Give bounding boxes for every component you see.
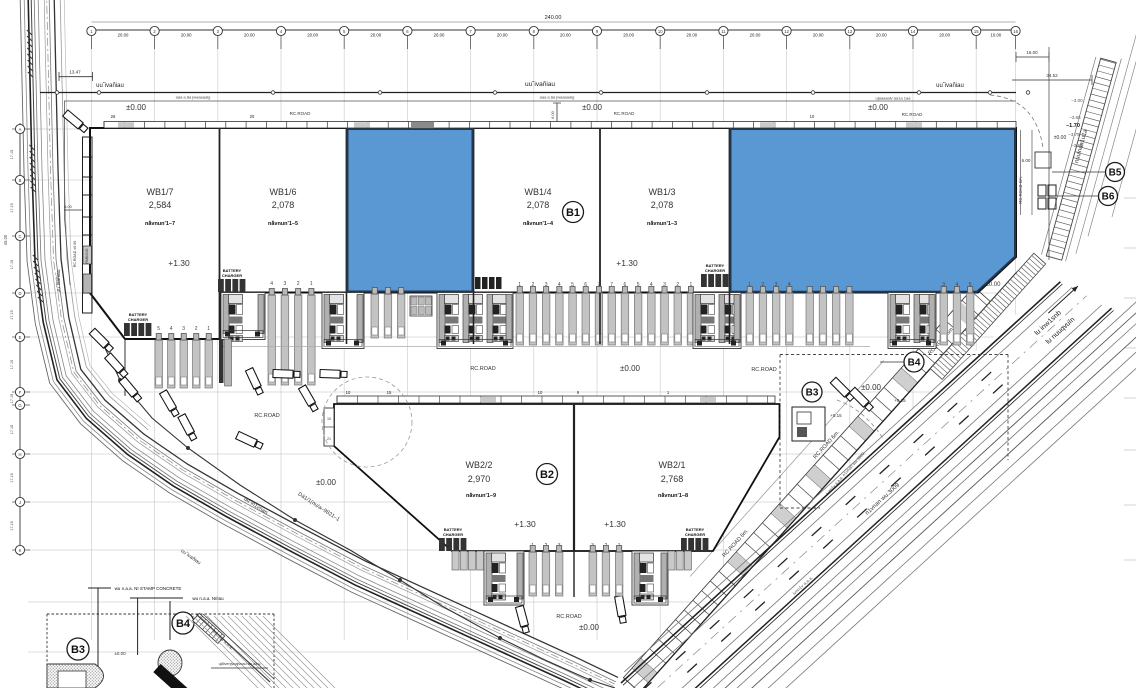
svg-text:WB1/4: WB1/4 (524, 187, 551, 197)
svg-text:uu˘ivañiau: uu˘ivañiau (936, 82, 964, 89)
svg-text:CHARGER: CHARGER (443, 532, 463, 537)
svg-text:RC.ROAD: RC.ROAD (290, 111, 312, 116)
svg-text:20: 20 (250, 114, 255, 119)
svg-text:2: 2 (195, 326, 198, 332)
svg-text:3: 3 (182, 326, 185, 332)
svg-text:17.15: 17.15 (10, 203, 14, 213)
svg-text:10: 10 (327, 417, 331, 421)
svg-text:13: 13 (847, 29, 852, 34)
svg-text:wu n.a.a. Nī STAMP CONCRETE: wu n.a.a. Nī STAMP CONCRETE (115, 586, 182, 591)
svg-text:240.00: 240.00 (545, 15, 562, 21)
svg-text:PARKING: PARKING (85, 248, 89, 263)
svg-text:nå̃vnun'1–3: nå̃vnun'1–3 (647, 220, 677, 227)
svg-text:B3: B3 (71, 644, 85, 656)
svg-text:±0.00: ±0.00 (986, 282, 1002, 288)
svg-text:B4: B4 (908, 358, 921, 369)
svg-text:RC.ROAD: RC.ROAD (614, 111, 636, 116)
svg-text:+0.15: +0.15 (830, 413, 842, 418)
svg-text:RC.ROAD: RC.ROAD (751, 367, 776, 373)
svg-text:17.15: 17.15 (10, 521, 14, 531)
svg-text:16: 16 (1013, 29, 1018, 34)
svg-text:–3.00: –3.00 (1071, 98, 1083, 103)
svg-text:WB2/1: WB2/1 (658, 460, 685, 470)
svg-text:12: 12 (784, 29, 789, 34)
svg-text:2: 2 (297, 281, 300, 287)
svg-text:uu˘ivañiau: uu˘ivañiau (525, 80, 555, 88)
svg-text:aaa a.āa jwaaaaalg: aaa a.āa jwaaaaalg (176, 95, 211, 100)
svg-text:45.00: 45.00 (3, 234, 8, 245)
svg-text:2,584: 2,584 (149, 200, 172, 210)
svg-text:CHARGER: CHARGER (705, 268, 725, 273)
svg-text:10: 10 (658, 29, 663, 34)
svg-text:D: D (18, 291, 21, 296)
svg-text:F: F (19, 390, 22, 395)
svg-text:2,078: 2,078 (651, 200, 674, 210)
svg-text:15: 15 (387, 390, 392, 395)
svg-text:6.00: 6.00 (1022, 158, 1031, 163)
svg-text:20.00: 20.00 (813, 33, 824, 38)
svg-text:E: E (19, 335, 22, 340)
svg-text:20.00: 20.00 (497, 33, 508, 38)
svg-text:2,768: 2,768 (661, 474, 684, 484)
svg-text:4: 4 (270, 281, 273, 287)
svg-text:ujaaaaalv aa1a 1aa: ujaaaaalv aa1a 1aa (876, 96, 912, 101)
svg-text:±0.00: ±0.00 (582, 103, 603, 112)
svg-text:RC.ROAD: RC.ROAD (470, 366, 495, 372)
svg-text:11: 11 (721, 29, 726, 34)
svg-text:26: 26 (111, 114, 116, 119)
svg-text:16.00: 16.00 (1026, 50, 1038, 55)
svg-text:RC.ROAD ±0.00: RC.ROAD ±0.00 (73, 241, 77, 268)
svg-text:J: J (19, 500, 21, 505)
svg-text:WB2/2: WB2/2 (465, 460, 492, 470)
svg-text:A: A (19, 127, 22, 132)
svg-text:aaa a.āa jwaaaaalg: aaa a.āa jwaaaaalg (540, 95, 575, 100)
svg-text:±0.00: ±0.00 (1054, 135, 1067, 141)
svg-text:WB1/3: WB1/3 (648, 187, 675, 197)
svg-text:1: 1 (207, 326, 210, 332)
svg-text:uj8lvenjvnajvnau aa.aa u.: uj8lvenjvnajvnau aa.aa u. (219, 662, 262, 666)
svg-text:B3: B3 (806, 388, 819, 399)
svg-text:6.00: 6.00 (551, 111, 555, 118)
svg-text:±0.00: ±0.00 (114, 651, 126, 656)
svg-text:10: 10 (538, 390, 543, 395)
svg-text:B4: B4 (176, 618, 191, 630)
svg-text:20.00: 20.00 (244, 33, 255, 38)
svg-text:CHARGER: CHARGER (685, 532, 705, 537)
svg-text:2,970: 2,970 (468, 474, 491, 484)
svg-text:2,078: 2,078 (527, 200, 550, 210)
svg-text:17.15: 17.15 (10, 360, 14, 370)
svg-text:B2: B2 (540, 469, 554, 481)
svg-text:15: 15 (974, 29, 979, 34)
svg-text:10: 10 (810, 114, 815, 119)
svg-text:nå̃vnun'1–9: nå̃vnun'1–9 (466, 492, 496, 499)
svg-text:4: 4 (170, 326, 173, 332)
svg-text:20.00: 20.00 (939, 33, 950, 38)
svg-text:17.15: 17.15 (10, 473, 14, 483)
svg-text:+1.30: +1.30 (168, 258, 190, 268)
svg-text:+1.30: +1.30 (616, 258, 638, 268)
svg-text:+0.15: +0.15 (894, 398, 906, 403)
svg-text:–3.65: –3.65 (1069, 115, 1081, 120)
svg-text:±0.00: ±0.00 (579, 623, 600, 632)
svg-text:–1.70: –1.70 (1066, 123, 1080, 129)
svg-text:17.15: 17.15 (10, 150, 14, 160)
svg-text:17.15: 17.15 (10, 260, 14, 270)
svg-text:–3.75: –3.75 (1068, 132, 1080, 137)
svg-text:17.15: 17.15 (10, 425, 14, 435)
svg-text:nå̃vnun'1–4: nå̃vnun'1–4 (523, 220, 554, 227)
svg-text:B6: B6 (1102, 192, 1115, 203)
svg-text:B5: B5 (1109, 168, 1122, 179)
svg-text:20.00: 20.00 (434, 33, 445, 38)
svg-text:±0.00: ±0.00 (126, 103, 147, 112)
svg-text:6.00: 6.00 (64, 205, 71, 209)
svg-text:+1.30: +1.30 (514, 519, 536, 529)
svg-text:34.52: 34.52 (1046, 73, 1058, 78)
svg-text:2,078: 2,078 (272, 200, 295, 210)
svg-text:20.00: 20.00 (876, 33, 887, 38)
svg-text:+1.30: +1.30 (604, 519, 626, 529)
svg-text:21: 21 (327, 437, 331, 441)
svg-text:13.47: 13.47 (69, 70, 81, 75)
svg-text:±0.00: ±0.00 (861, 383, 882, 392)
svg-text:B: B (19, 178, 22, 183)
svg-text:uu˘ivañiau: uu˘ivañiau (96, 82, 124, 89)
svg-text:20.00: 20.00 (623, 33, 634, 38)
svg-text:RC.ROAD: RC.ROAD (902, 112, 924, 117)
svg-text:K: K (19, 548, 22, 553)
svg-text:nå̃vnun'1–8: nå̃vnun'1–8 (658, 492, 688, 499)
svg-text:CHARGER: CHARGER (128, 317, 148, 322)
svg-text:17.15: 17.15 (10, 310, 14, 320)
svg-text:G: G (18, 403, 21, 408)
svg-text:±0.00: ±0.00 (316, 478, 337, 487)
svg-text:10: 10 (346, 390, 351, 395)
svg-text:17.15: 17.15 (10, 394, 14, 404)
svg-text:20.00: 20.00 (560, 33, 571, 38)
svg-text:3: 3 (284, 281, 287, 287)
svg-text:±0.00: ±0.00 (868, 103, 889, 112)
svg-text:RC.ROAD: RC.ROAD (254, 413, 279, 419)
svg-text:20.00: 20.00 (370, 33, 381, 38)
svg-text:uu˘ivañiau: uu˘ivañiau (55, 269, 62, 292)
svg-text:20.00: 20.00 (686, 33, 697, 38)
svg-text:CHARGER: CHARGER (222, 273, 242, 278)
svg-text:wu n.a.a. Nīiīau: wu n.a.a. Nīiīau (192, 596, 224, 601)
svg-text:nå̃vnun'1–7: nå̃vnun'1–7 (145, 220, 175, 227)
svg-text:H: H (18, 452, 21, 457)
svg-text:WB1/6: WB1/6 (269, 187, 296, 197)
svg-text:14: 14 (911, 29, 916, 34)
svg-text:10.00: 10.00 (991, 33, 1002, 38)
svg-text:–2.65: –2.65 (1071, 143, 1083, 148)
svg-text:C: C (18, 234, 21, 239)
svg-text:5: 5 (157, 326, 160, 332)
svg-text:B1: B1 (566, 207, 580, 219)
svg-text:WB1/7: WB1/7 (146, 187, 173, 197)
svg-text:20.00: 20.00 (181, 33, 192, 38)
svg-text:20.00: 20.00 (307, 33, 318, 38)
svg-text:RC.ROAD: RC.ROAD (556, 614, 581, 620)
svg-text:±0.00: ±0.00 (620, 364, 641, 373)
svg-text:nå̃vnun'1–5: nå̃vnun'1–5 (268, 220, 298, 227)
svg-text:20.00: 20.00 (118, 33, 129, 38)
svg-text:1: 1 (310, 281, 313, 287)
svg-text:20.00: 20.00 (750, 33, 761, 38)
